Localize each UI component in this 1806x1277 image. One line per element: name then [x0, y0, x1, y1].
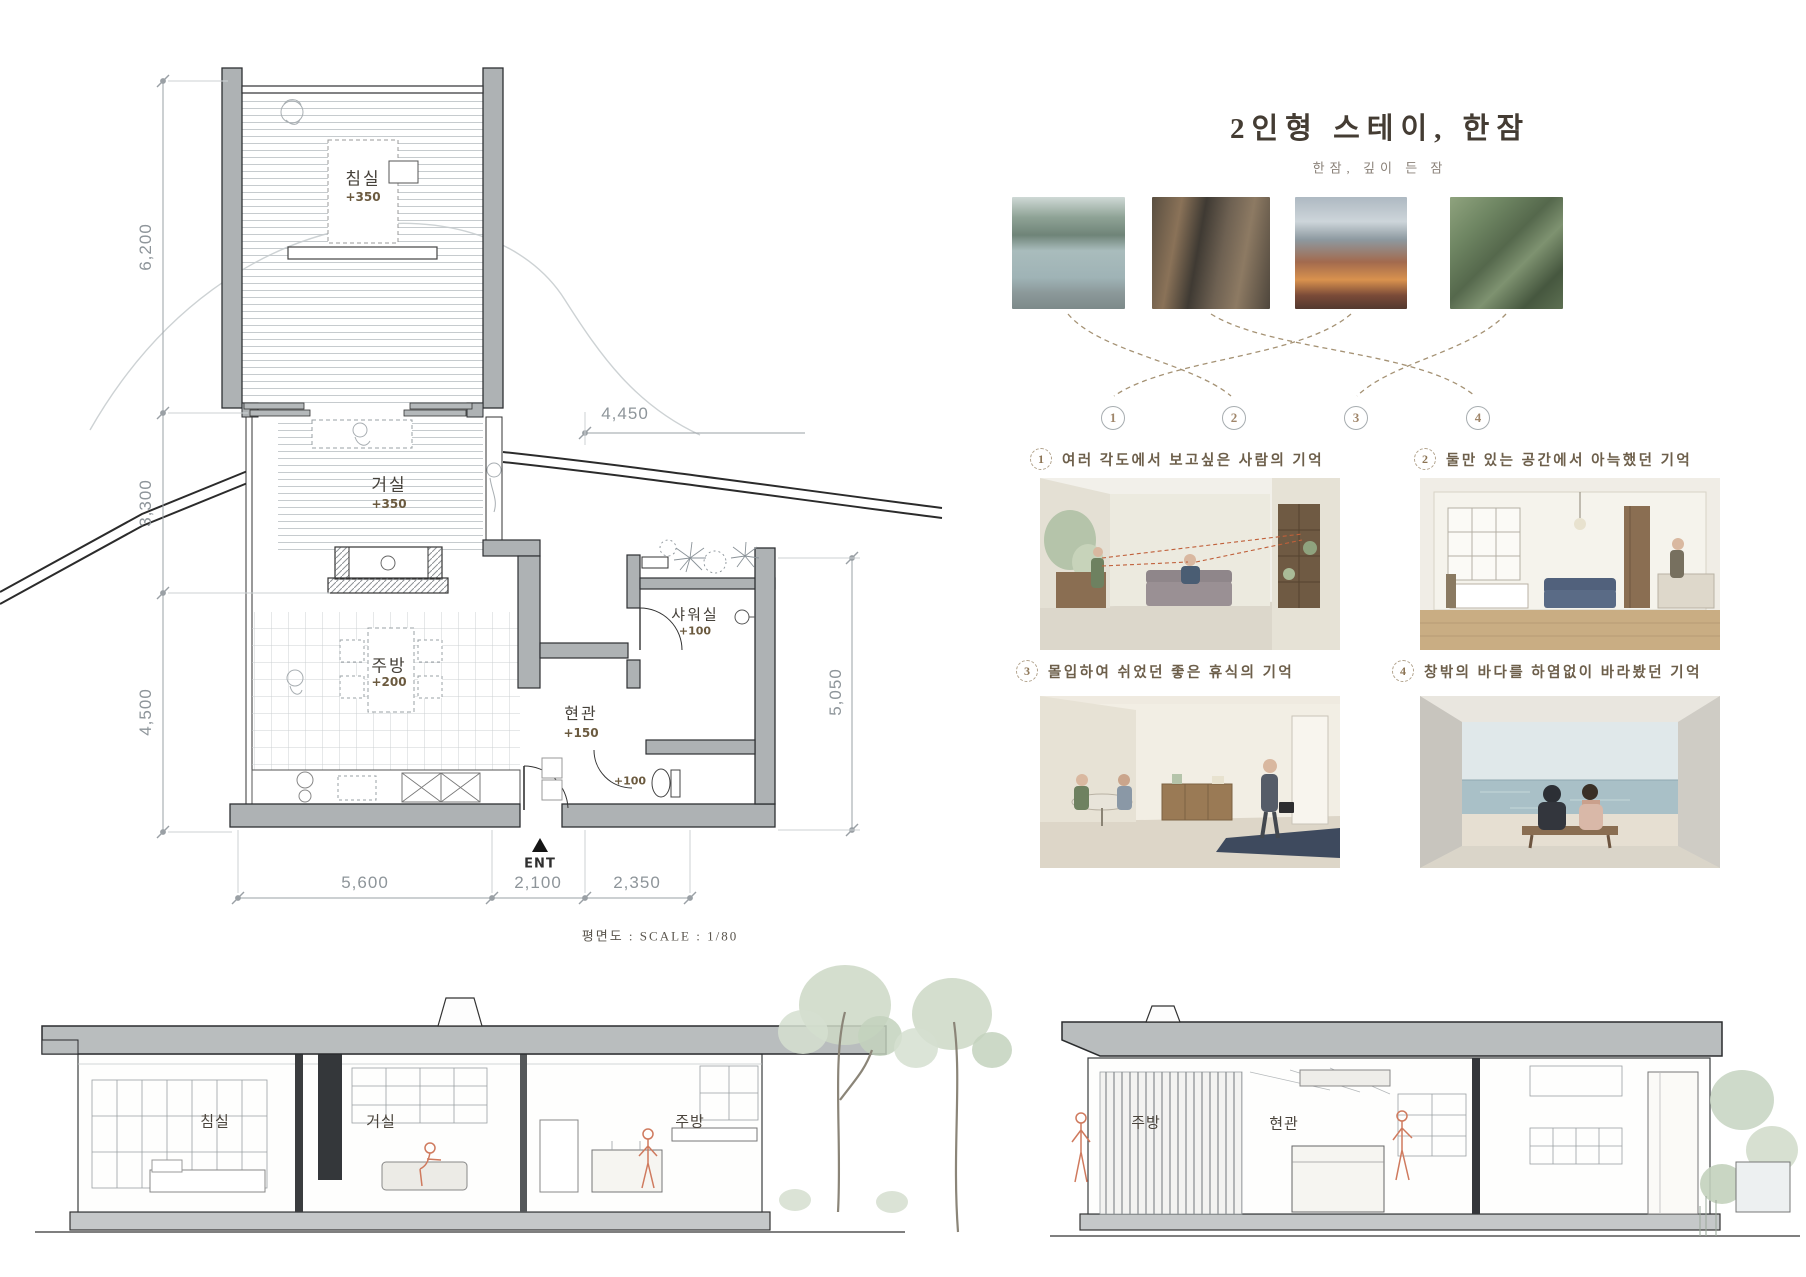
memory-number-4: 4 [1392, 660, 1414, 682]
room-level-entrance: +150 [563, 726, 598, 740]
panel-title: 2인형 스테이, 한잠 [1230, 105, 1530, 147]
room-level-kitchen: +200 [371, 675, 406, 689]
section-right-label-kitchen: 주방 [1131, 1112, 1161, 1133]
memory-number-3: 3 [1016, 660, 1038, 682]
memory-render-1 [1040, 478, 1340, 650]
garden [1700, 1070, 1798, 1236]
dim-top-right: 4,450 [601, 404, 649, 424]
dim-bottom-middle: 2,100 [514, 873, 562, 893]
section-right [876, 978, 1800, 1236]
section-left-label-living: 거실 [366, 1111, 396, 1132]
dim-left-middle: 3,300 [136, 479, 156, 527]
memory-caption-1: 1 여러 각도에서 보고싶은 사람의 기억 [1030, 448, 1324, 470]
dim-left-lower: 4,500 [136, 688, 156, 736]
room-label-bedroom: 침실 [345, 165, 380, 190]
dim-right [778, 552, 860, 836]
memory-caption-text-3: 몰입하여 쉬었던 좋은 휴식의 기억 [1048, 661, 1294, 682]
room-level-bedroom: +350 [345, 190, 380, 204]
connector-number-3: 3 [1344, 406, 1368, 430]
tree [778, 965, 902, 1212]
memory-render-3 [1040, 696, 1340, 868]
memory-number-2: 2 [1414, 448, 1436, 470]
dim-bottom-right: 2,350 [613, 873, 661, 893]
memory-render-4 [1420, 696, 1720, 868]
photo-couple-in-garden [1450, 197, 1563, 309]
panel-subtitle: 한잠, 깊이 든 잠 [1313, 158, 1448, 177]
room-label-entrance: 현관 [564, 700, 597, 724]
memory-caption-text-4: 창밖의 바다를 하염없이 바라봤던 기억 [1424, 661, 1702, 682]
memory-caption-4: 4 창밖의 바다를 하염없이 바라봤던 기억 [1392, 660, 1702, 682]
dim-left-upper: 6,200 [136, 223, 156, 271]
memory-render-2 [1420, 478, 1720, 650]
room-label-shower: 샤워실 [671, 604, 718, 625]
photo-couple-by-lake [1012, 197, 1125, 309]
memory-caption-3: 3 몰입하여 쉬었던 좋은 휴식의 기억 [1016, 660, 1294, 682]
section-left-label-bedroom: 침실 [200, 1111, 230, 1132]
memory-caption-text-2: 둘만 있는 공간에서 아늑했던 기억 [1446, 449, 1692, 470]
entrance-marker: ENT [524, 857, 556, 872]
dim-bottom-left: 5,600 [341, 873, 389, 893]
room-label-kitchen: 주방 [371, 652, 406, 677]
memory-number-1: 1 [1030, 448, 1052, 470]
memory-connectors [1068, 314, 1506, 396]
plan-scale-note: 평면도 : SCALE : 1/80 [582, 926, 738, 945]
section-left-label-kitchen: 주방 [675, 1111, 705, 1132]
room-level-living: +350 [371, 497, 406, 511]
floor-plan [157, 68, 860, 904]
section-left [35, 965, 905, 1232]
photo-couple-by-campfire [1295, 197, 1407, 309]
connector-number-2: 2 [1222, 406, 1246, 430]
tree [876, 978, 1012, 1232]
memory-caption-2: 2 둘만 있는 공간에서 아늑했던 기억 [1414, 448, 1692, 470]
dim-right: 5,050 [826, 668, 846, 716]
photo-reading-on-porch [1152, 197, 1270, 309]
room-label-living: 거실 [371, 471, 406, 496]
room-level-toilet: +100 [614, 775, 646, 788]
section-right-label-entrance: 현관 [1269, 1113, 1299, 1134]
memory-caption-text-1: 여러 각도에서 보고싶은 사람의 기억 [1062, 449, 1324, 470]
plan-plants [660, 540, 759, 573]
connector-number-4: 4 [1466, 406, 1490, 430]
room-level-shower: +100 [679, 625, 711, 638]
presentation-board: 침실 +350 거실 +350 주방 +200 현관 +150 샤워실 +100… [0, 0, 1806, 1277]
connector-number-1: 1 [1101, 406, 1125, 430]
